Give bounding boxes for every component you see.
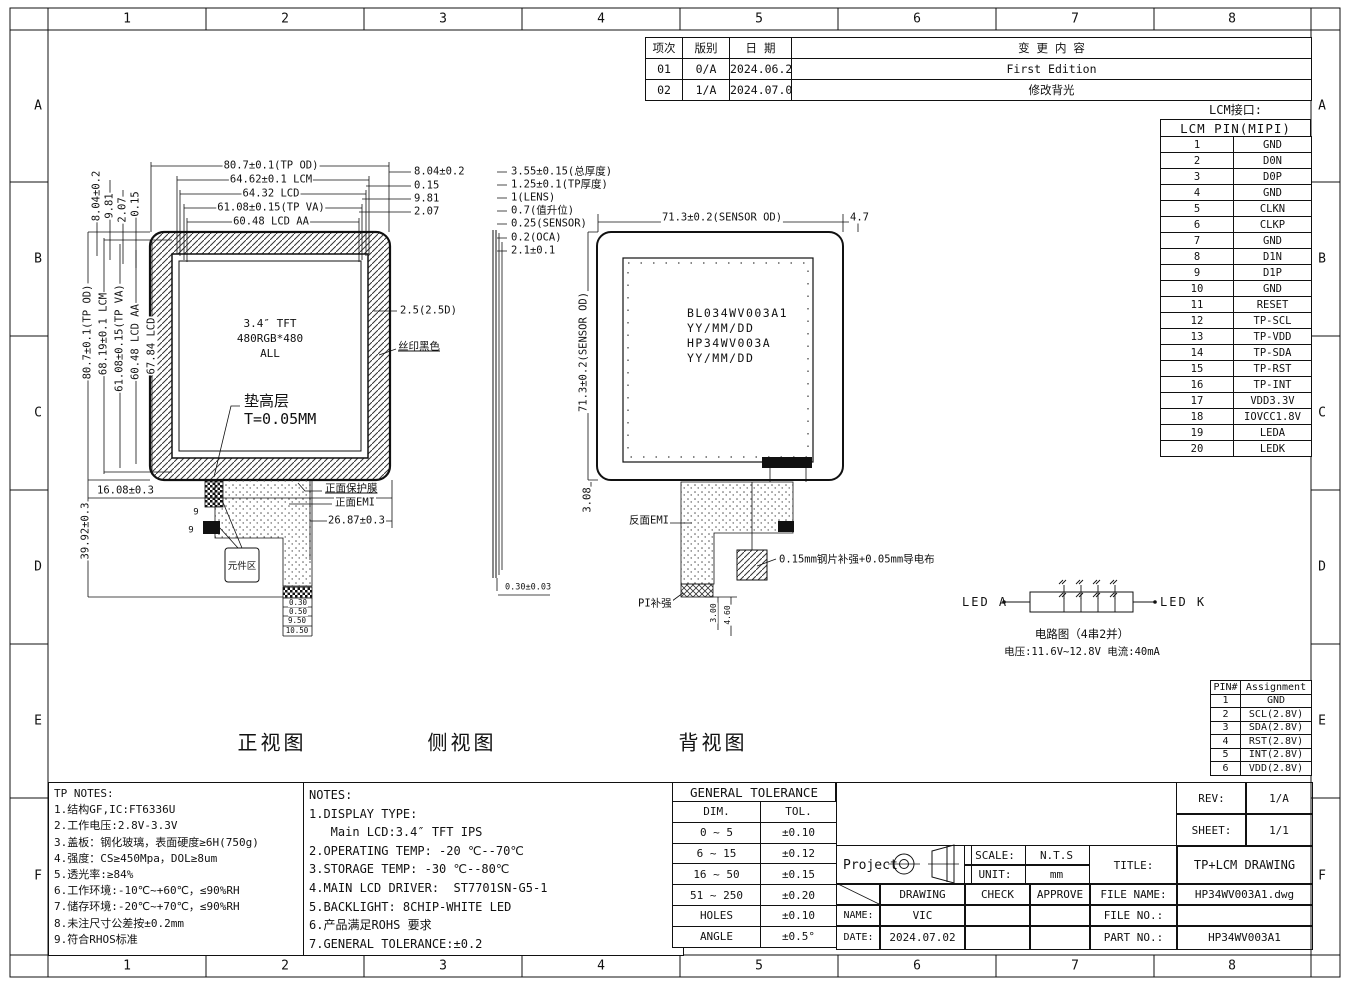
table-row: HOLES±0.10 bbox=[673, 905, 837, 926]
date-value: 2024.07.02 bbox=[879, 925, 966, 950]
text-line: 6.工作环境:-10℃~+60℃，≤90%RH bbox=[54, 883, 309, 899]
lcm-pin-table: 1GND2D0N3D0P4GND5CLKN6CLKP7GND8D1N9D1P10… bbox=[1160, 136, 1312, 457]
table-row: 6CLKP bbox=[1161, 217, 1312, 233]
table-row: 7GND bbox=[1161, 233, 1312, 249]
table-row: 3SDA(2.8V) bbox=[1211, 721, 1312, 735]
table-cell: ANGLE bbox=[673, 926, 761, 947]
table-cell: ±0.20 bbox=[761, 885, 837, 906]
table-row: 6 ~ 15±0.12 bbox=[673, 843, 837, 864]
table-row: DIM.TOL. bbox=[673, 802, 837, 823]
text-line: 5.透光率:≥84% bbox=[54, 867, 309, 883]
table-row: 2SCL(2.8V) bbox=[1211, 708, 1312, 722]
led-circuit-spec: 电压:11.6V~12.8V 电流:40mA bbox=[972, 644, 1192, 659]
table-cell: 6 bbox=[1211, 762, 1241, 776]
table-cell: TOL. bbox=[761, 802, 837, 823]
table-row: 8D1N bbox=[1161, 249, 1312, 265]
front-view-title: 正视图 bbox=[238, 727, 307, 756]
table-row: 5INT(2.8V) bbox=[1211, 748, 1312, 762]
check-date-cell bbox=[964, 925, 1031, 950]
file-no-value bbox=[1176, 904, 1313, 927]
table-cell: 17 bbox=[1161, 393, 1234, 409]
text-line: 9.符合RHOS标准 bbox=[54, 932, 309, 948]
check-sign-cell bbox=[964, 904, 1031, 927]
date-label: DATE: bbox=[836, 925, 881, 950]
table-cell: 4 bbox=[1211, 735, 1241, 749]
table-cell: ±0.10 bbox=[761, 905, 837, 926]
table-cell: TP-INT bbox=[1234, 377, 1312, 393]
table-cell: 2 bbox=[1161, 153, 1234, 169]
file-name-value: HP34WV003A1.dwg bbox=[1176, 883, 1313, 906]
title-value: TP+LCM DRAWING bbox=[1176, 845, 1313, 885]
table-cell: PIN# bbox=[1211, 681, 1241, 695]
table-row: 20LEDK bbox=[1161, 441, 1312, 457]
table-cell: First Edition bbox=[792, 59, 1312, 80]
table-cell: TP-VDD bbox=[1234, 329, 1312, 345]
table-cell: 3 bbox=[1161, 169, 1234, 185]
table-row: 12TP-SCL bbox=[1161, 313, 1312, 329]
component-area-label: 元件区 bbox=[225, 558, 259, 572]
tp-notes-title: TP NOTES: bbox=[54, 786, 309, 802]
table-cell: 2 bbox=[1211, 708, 1241, 722]
drawing-label: DRAWING bbox=[879, 883, 966, 906]
table-cell: TP-RST bbox=[1234, 361, 1312, 377]
text-line: 6.产品满足ROHS 要求 bbox=[309, 916, 678, 935]
table-row: 1GND bbox=[1211, 694, 1312, 708]
table-cell: D0P bbox=[1234, 169, 1312, 185]
name-value: VIC bbox=[879, 904, 966, 927]
table-cell: GND bbox=[1234, 233, 1312, 249]
table-cell: 15 bbox=[1161, 361, 1234, 377]
table-cell: 6 bbox=[1161, 217, 1234, 233]
part-no-label: PART NO.: bbox=[1089, 925, 1178, 950]
table-cell: INT(2.8V) bbox=[1241, 748, 1312, 762]
tolerance-table: DIM.TOL. 0 ~ 5±0.106 ~ 15±0.1216 ~ 50±0.… bbox=[672, 801, 837, 948]
side-view-title: 侧视图 bbox=[428, 727, 497, 756]
text-line: HP34WV003A bbox=[687, 336, 788, 351]
table-cell: 项次 bbox=[646, 38, 683, 59]
text-line: ALL bbox=[190, 346, 350, 361]
table-cell: LEDA bbox=[1234, 425, 1312, 441]
table-cell: GND bbox=[1234, 185, 1312, 201]
table-cell: VDD3.3V bbox=[1234, 393, 1312, 409]
drawing-sheet: 项次版别日 期变 更 内 容 010/A2024.06.25First Edit… bbox=[0, 0, 1349, 985]
back-view-geometry bbox=[588, 214, 858, 636]
text-line: 1.DISPLAY TYPE: bbox=[309, 805, 678, 824]
text-line: 480RGB*480 bbox=[190, 331, 350, 346]
table-cell: TP-SCL bbox=[1234, 313, 1312, 329]
table-cell: 51 ~ 250 bbox=[673, 885, 761, 906]
table-cell: 12 bbox=[1161, 313, 1234, 329]
scale-value: N.T.S bbox=[1024, 845, 1090, 866]
rev-value: 1/A bbox=[1245, 782, 1313, 815]
table-row: 16 ~ 50±0.15 bbox=[673, 864, 837, 885]
text-line: Main LCD:3.4″ TFT IPS bbox=[309, 823, 678, 842]
led-anode-label: LED A bbox=[962, 595, 1008, 609]
unit-value: mm bbox=[1024, 864, 1090, 885]
table-cell: 01 bbox=[646, 59, 683, 80]
table-row: 0 ~ 5±0.10 bbox=[673, 822, 837, 843]
table-cell: GND bbox=[1234, 137, 1312, 153]
text-line: 3.STORAGE TEMP: -30 ℃--80℃ bbox=[309, 860, 678, 879]
text-line: 3.盖板：钢化玻璃，表面硬度≥6H(750g) bbox=[54, 835, 309, 851]
text-line: 1.结构GF,IC:FT6336U bbox=[54, 802, 309, 818]
table-cell: DIM. bbox=[673, 802, 761, 823]
title-label: TITLE: bbox=[1089, 845, 1178, 885]
revision-table: 项次版别日 期变 更 内 容 010/A2024.06.25First Edit… bbox=[645, 37, 1312, 101]
table-cell: SCL(2.8V) bbox=[1241, 708, 1312, 722]
text-line: 2.OPERATING TEMP: -20 ℃--70℃ bbox=[309, 842, 678, 861]
table-cell: 3 bbox=[1211, 721, 1241, 735]
table-cell: 日 期 bbox=[730, 38, 792, 59]
text-line: 3.4″ TFT bbox=[190, 316, 350, 331]
table-cell: 5 bbox=[1161, 201, 1234, 217]
text-line: BL034WV003A1 bbox=[687, 306, 788, 321]
text-line: 4.MAIN LCD DRIVER: ST7701SN-G5-1 bbox=[309, 879, 678, 898]
table-cell: GND bbox=[1234, 281, 1312, 297]
sheet-value: 1/1 bbox=[1245, 813, 1313, 847]
tp-notes: TP NOTES: 1.结构GF,IC:FT6336U2.工作电压:2.8V-3… bbox=[48, 782, 315, 956]
notes-title: NOTES: bbox=[309, 786, 678, 805]
table-cell: 2024.06.25 bbox=[730, 59, 792, 80]
table-row: 17VDD3.3V bbox=[1161, 393, 1312, 409]
table-row: 4RST(2.8V) bbox=[1211, 735, 1312, 749]
table-cell: Assignment bbox=[1241, 681, 1312, 695]
back-panel-text: BL034WV003A1YY/MM/DDHP34WV003AYY/MM/DD bbox=[687, 306, 788, 366]
table-row: 2D0N bbox=[1161, 153, 1312, 169]
table-cell: 1/A bbox=[683, 80, 730, 101]
table-cell: CLKN bbox=[1234, 201, 1312, 217]
table-row: 10GND bbox=[1161, 281, 1312, 297]
table-cell: VDD(2.8V) bbox=[1241, 762, 1312, 776]
text-line: 8.未注尺寸公差按±0.2mm bbox=[54, 916, 309, 932]
project-label: Project bbox=[836, 845, 972, 885]
lcd-notes: NOTES: 1.DISPLAY TYPE: Main LCD:3.4″ TFT… bbox=[303, 782, 684, 956]
table-cell: D1P bbox=[1234, 265, 1312, 281]
table-row: 11RESET bbox=[1161, 297, 1312, 313]
approve-sign-cell bbox=[1029, 904, 1091, 927]
table-cell: D1N bbox=[1234, 249, 1312, 265]
table-cell: 0 ~ 5 bbox=[673, 822, 761, 843]
table-cell: 版别 bbox=[683, 38, 730, 59]
name-label: NAME: bbox=[836, 904, 881, 927]
table-cell: RST(2.8V) bbox=[1241, 735, 1312, 749]
notes-list: 1.DISPLAY TYPE: Main LCD:3.4″ TFT IPS2.O… bbox=[309, 805, 678, 954]
table-cell: 16 ~ 50 bbox=[673, 864, 761, 885]
table-cell: 1 bbox=[1161, 137, 1234, 153]
table-cell: 修改背光 bbox=[792, 80, 1312, 101]
table-row: 021/A2024.07.02修改背光 bbox=[646, 80, 1312, 101]
table-row: 13TP-VDD bbox=[1161, 329, 1312, 345]
table-row: 3D0P bbox=[1161, 169, 1312, 185]
table-cell: 02 bbox=[646, 80, 683, 101]
table-cell: 1 bbox=[1211, 694, 1241, 708]
table-cell: 11 bbox=[1161, 297, 1234, 313]
table-cell: 20 bbox=[1161, 441, 1234, 457]
pin-assignment-table: PIN#Assignment 1GND2SCL(2.8V)3SDA(2.8V)4… bbox=[1210, 680, 1312, 776]
table-row: 14TP-SDA bbox=[1161, 345, 1312, 361]
text-line: 2.工作电压:2.8V-3.3V bbox=[54, 818, 309, 834]
table-row: ANGLE±0.5° bbox=[673, 926, 837, 947]
table-cell: 0/A bbox=[683, 59, 730, 80]
table-cell: ±0.15 bbox=[761, 864, 837, 885]
scale-label: SCALE: bbox=[964, 845, 1026, 866]
text-line: YY/MM/DD bbox=[687, 321, 788, 336]
text-line: 7.储存环境:-20℃~+70℃，≤90%RH bbox=[54, 899, 309, 915]
table-cell: 18 bbox=[1161, 409, 1234, 425]
table-cell: 9 bbox=[1161, 265, 1234, 281]
table-cell: D0N bbox=[1234, 153, 1312, 169]
table-cell: 10 bbox=[1161, 281, 1234, 297]
table-row: PIN#Assignment bbox=[1211, 681, 1312, 695]
table-cell: LEDK bbox=[1234, 441, 1312, 457]
table-cell: HOLES bbox=[673, 905, 761, 926]
table-cell: ±0.5° bbox=[761, 926, 837, 947]
table-cell: SDA(2.8V) bbox=[1241, 721, 1312, 735]
file-no-label: FILE NO.: bbox=[1089, 904, 1178, 927]
table-cell: 2024.07.02 bbox=[730, 80, 792, 101]
led-circuit-geometry bbox=[1002, 580, 1157, 612]
sign-corner-cell bbox=[836, 883, 881, 906]
table-cell: 4 bbox=[1161, 185, 1234, 201]
table-cell: 13 bbox=[1161, 329, 1234, 345]
text-line: YY/MM/DD bbox=[687, 351, 788, 366]
back-view-title: 背视图 bbox=[679, 727, 748, 756]
tp-notes-list: 1.结构GF,IC:FT6336U2.工作电压:2.8V-3.3V3.盖板：钢化… bbox=[54, 802, 309, 948]
table-cell: 19 bbox=[1161, 425, 1234, 441]
table-row: 9D1P bbox=[1161, 265, 1312, 281]
table-cell: TP-SDA bbox=[1234, 345, 1312, 361]
table-row: 18IOVCC1.8V bbox=[1161, 409, 1312, 425]
front-panel-text: 3.4″ TFT480RGB*480ALL bbox=[190, 316, 350, 361]
approve-date-cell bbox=[1029, 925, 1091, 950]
sheet-label: SHEET: bbox=[1176, 813, 1247, 847]
table-row: 4GND bbox=[1161, 185, 1312, 201]
table-row: 51 ~ 250±0.20 bbox=[673, 885, 837, 906]
table-cell: ±0.10 bbox=[761, 822, 837, 843]
lcm-interface-label: LCM接口: bbox=[1160, 101, 1311, 118]
table-row: 15TP-RST bbox=[1161, 361, 1312, 377]
table-row: 6VDD(2.8V) bbox=[1211, 762, 1312, 776]
table-cell: CLKP bbox=[1234, 217, 1312, 233]
table-row: 16TP-INT bbox=[1161, 377, 1312, 393]
table-row: 1GND bbox=[1161, 137, 1312, 153]
table-cell: 6 ~ 15 bbox=[673, 843, 761, 864]
table-row: 项次版别日 期变 更 内 容 bbox=[646, 38, 1312, 59]
rev-label: REV: bbox=[1176, 782, 1247, 815]
part-no-value: HP34WV003A1 bbox=[1176, 925, 1313, 950]
table-cell: 变 更 内 容 bbox=[792, 38, 1312, 59]
table-cell: IOVCC1.8V bbox=[1234, 409, 1312, 425]
unit-label: UNIT: bbox=[964, 864, 1026, 885]
approve-label: APPROVE bbox=[1029, 883, 1091, 906]
table-cell: 5 bbox=[1211, 748, 1241, 762]
tolerance-table-title: GENERAL TOLERANCE bbox=[672, 782, 836, 803]
table-row: 5CLKN bbox=[1161, 201, 1312, 217]
table-cell: ±0.12 bbox=[761, 843, 837, 864]
table-row: 010/A2024.06.25First Edition bbox=[646, 59, 1312, 80]
table-cell: RESET bbox=[1234, 297, 1312, 313]
led-cathode-label: LED K bbox=[1160, 595, 1206, 609]
table-row: 19LEDA bbox=[1161, 425, 1312, 441]
led-circuit-caption: 电路图（4串2并） bbox=[997, 626, 1167, 642]
table-cell: 14 bbox=[1161, 345, 1234, 361]
check-label: CHECK bbox=[964, 883, 1031, 906]
file-name-label: FILE NAME: bbox=[1089, 883, 1178, 906]
text-line: 7.GENERAL TOLERANCE:±0.2 bbox=[309, 935, 678, 954]
table-cell: 7 bbox=[1161, 233, 1234, 249]
text-line: 5.BACKLIGHT: 8CHIP-WHITE LED bbox=[309, 898, 678, 917]
text-line: 4.强度：CS≥450Mpa，DOL≥8um bbox=[54, 851, 309, 867]
table-cell: 8 bbox=[1161, 249, 1234, 265]
table-cell: GND bbox=[1241, 694, 1312, 708]
side-view-geometry bbox=[493, 172, 550, 595]
table-cell: 16 bbox=[1161, 377, 1234, 393]
